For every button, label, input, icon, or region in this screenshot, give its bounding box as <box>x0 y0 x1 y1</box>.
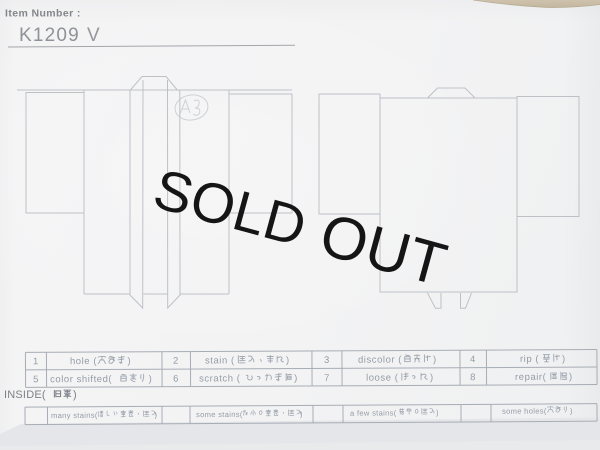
svg-text:repair(: repair( <box>515 372 547 383</box>
svg-text:scratch (: scratch ( <box>199 373 241 384</box>
svg-text:INSIDE(: INSIDE( <box>4 389 46 401</box>
svg-text:stain (: stain ( <box>205 355 235 366</box>
svg-text:color shifted(: color shifted( <box>50 374 112 385</box>
svg-text:): ) <box>73 389 77 401</box>
svg-text:discolor (: discolor ( <box>358 355 402 366</box>
svg-text:some stains(: some stains( <box>196 410 243 419</box>
svg-text:V: V <box>87 25 100 46</box>
svg-text:Item Number :: Item Number : <box>5 8 81 20</box>
svg-text:rip (: rip ( <box>520 354 539 365</box>
svg-text:): ) <box>430 372 434 383</box>
svg-text:5: 5 <box>33 374 39 385</box>
svg-text:): ) <box>433 354 437 365</box>
svg-text:): ) <box>154 410 157 419</box>
svg-text:K1209: K1209 <box>19 25 80 46</box>
svg-text:): ) <box>286 355 290 366</box>
svg-text:7: 7 <box>324 373 330 384</box>
svg-text:some holes(: some holes( <box>502 406 547 415</box>
svg-text:many stains(: many stains( <box>51 411 98 420</box>
svg-text:a few stains(: a few stains( <box>350 408 397 417</box>
svg-text:): ) <box>570 406 573 415</box>
svg-text:hole (: hole ( <box>70 356 97 367</box>
svg-text:8: 8 <box>470 372 476 383</box>
svg-text:loose (: loose ( <box>366 373 399 384</box>
svg-text:): ) <box>300 409 303 418</box>
svg-text:2: 2 <box>173 356 179 367</box>
svg-text:4: 4 <box>470 354 476 365</box>
svg-text:): ) <box>149 374 153 385</box>
svg-text:SOLD: SOLD <box>147 157 313 259</box>
svg-text:): ) <box>294 373 298 384</box>
svg-text:1: 1 <box>33 356 39 367</box>
svg-text:): ) <box>127 356 131 367</box>
svg-text:3: 3 <box>324 355 330 366</box>
svg-text:): ) <box>436 408 439 417</box>
svg-text:): ) <box>569 372 573 383</box>
svg-text:): ) <box>562 354 566 365</box>
svg-text:6: 6 <box>173 374 179 385</box>
svg-text:OUT: OUT <box>313 200 453 298</box>
